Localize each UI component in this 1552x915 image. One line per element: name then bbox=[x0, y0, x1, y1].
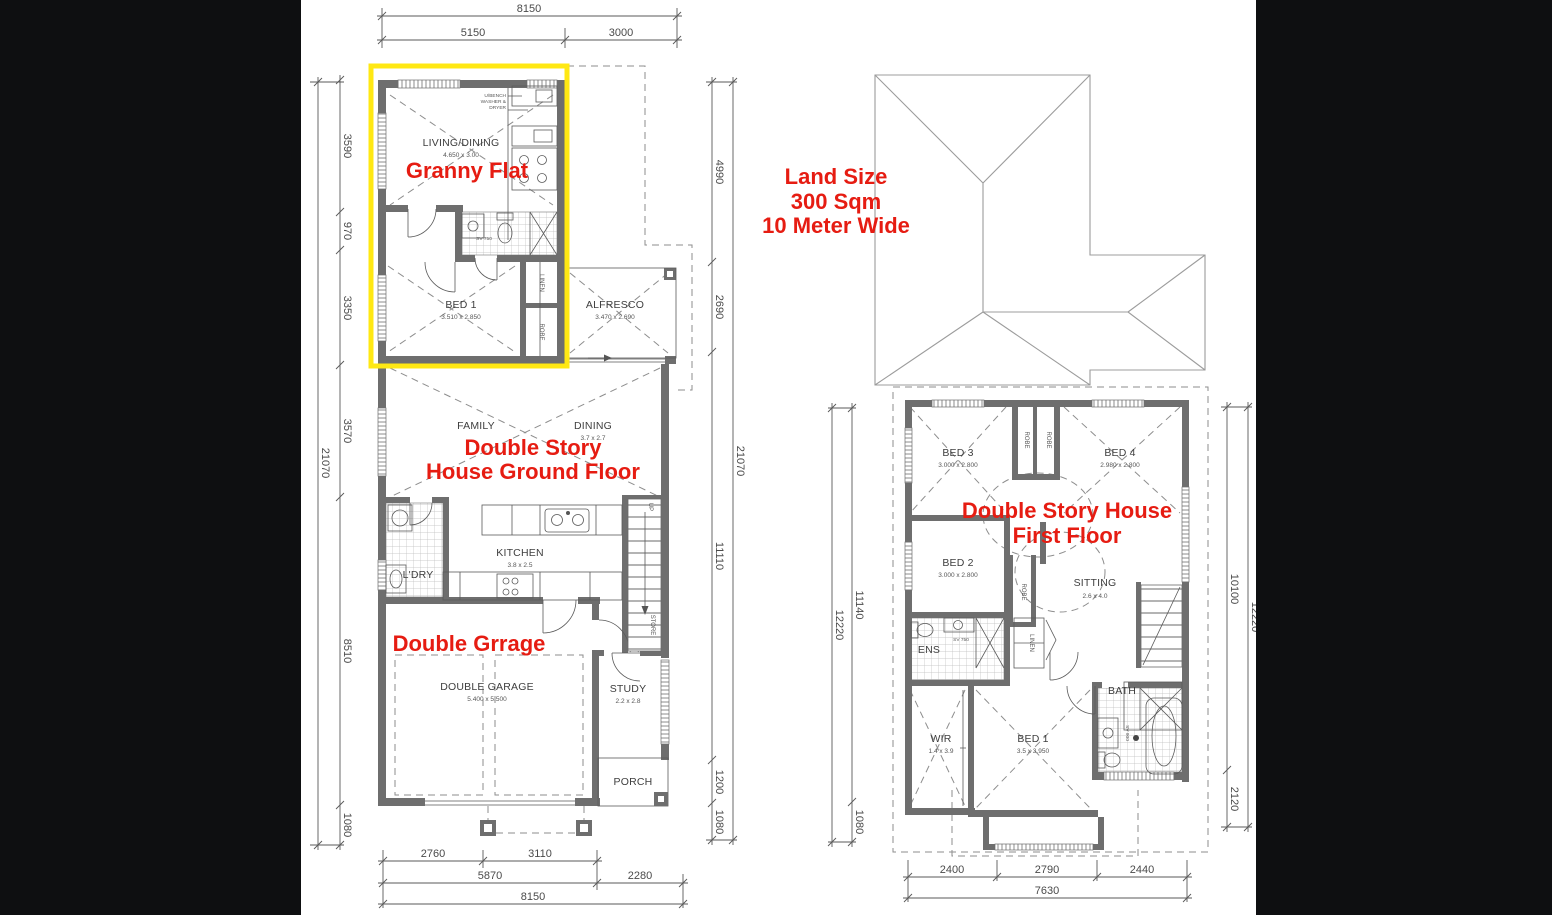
ff-room-bed4-label: BED 4 bbox=[1104, 447, 1135, 459]
gf-room-bed1-label: BED 1 bbox=[445, 299, 476, 311]
annotation-ground-floor-line2: House Ground Floor bbox=[426, 459, 640, 484]
ff-dim-right-a: 10100 bbox=[1228, 574, 1240, 605]
gf-label-up: UP bbox=[647, 503, 653, 511]
gf-room-family-label: FAMILY bbox=[457, 420, 495, 432]
gf-appliance-note-3: DRYER bbox=[489, 105, 506, 111]
gf-room-study-size: 2.2 x 2.8 bbox=[616, 698, 641, 705]
ff-label-robe-2: ROBE bbox=[1045, 431, 1051, 448]
gf-dim-bottom-d: 2280 bbox=[628, 870, 652, 882]
ff-label-robe-1: ROBE bbox=[1023, 431, 1029, 448]
ff-dim-right-b: 2120 bbox=[1228, 787, 1240, 811]
gf-dim-right-c: 11110 bbox=[713, 542, 725, 570]
gf-room-living-label: LIVING/DINING bbox=[423, 137, 500, 149]
gf-room-garage-label: DOUBLE GARAGE bbox=[440, 681, 534, 693]
gf-dim-left-total: 21070 bbox=[319, 448, 331, 479]
gf-room-garage-size: 5.400 x 5.500 bbox=[467, 696, 507, 703]
ff-dim-left-b: 1080 bbox=[853, 810, 865, 834]
left-black-bar bbox=[0, 0, 301, 915]
gf-dim-right-d: 1200 bbox=[713, 770, 725, 794]
ff-room-bed1-label: BED 1 bbox=[1017, 733, 1048, 745]
gf-dim-bottom-b: 3110 bbox=[528, 848, 552, 860]
ff-dim-bottom-b: 2790 bbox=[1035, 864, 1059, 876]
gf-dim-right-e: 1080 bbox=[713, 810, 725, 834]
annotation-ground-floor-line1: Double Story bbox=[465, 435, 603, 460]
gf-dim-bottom-total: 8150 bbox=[521, 891, 545, 903]
gf-dim-left-a: 3590 bbox=[341, 134, 353, 158]
gf-room-study-label: STUDY bbox=[610, 683, 647, 695]
ff-label-linen: LINEN bbox=[1028, 634, 1034, 652]
gf-room-kitchen-label: KITCHEN bbox=[496, 547, 544, 559]
gf-label-sv750: SV 750 bbox=[476, 236, 492, 242]
gf-room-alfresco-size: 3.470 x 2.690 bbox=[595, 314, 635, 321]
gf-appliance-note-1: U/BENCH bbox=[484, 93, 506, 99]
ff-room-bed4-size: 2.980 x 2.800 bbox=[1100, 462, 1140, 469]
gf-dim-left-e: 8510 bbox=[341, 639, 353, 663]
gf-dim-left-f: 1080 bbox=[341, 813, 353, 837]
gf-dim-left-b: 970 bbox=[341, 222, 353, 240]
gf-dim-top-b: 3000 bbox=[609, 27, 633, 39]
gf-room-alfresco-label: ALFRESCO bbox=[586, 299, 644, 311]
gf-label-store: STORE bbox=[649, 615, 655, 636]
ff-room-bed3-label: BED 3 bbox=[942, 447, 973, 459]
ff-label-sv750: SV 750 bbox=[953, 637, 969, 643]
floor-plan-page: 8150 5150 3000 21070 3590 970 3350 3570 … bbox=[0, 0, 1552, 915]
gf-room-porch-label: PORCH bbox=[614, 776, 653, 788]
gf-room-bed1-size: 3.510 x 2.850 bbox=[441, 314, 481, 321]
ff-label-robe-3: ROBE bbox=[1020, 583, 1026, 600]
gf-label-robe: ROBE bbox=[538, 323, 544, 340]
annotation-land-line3: 10 Meter Wide bbox=[762, 213, 910, 238]
annotation-garage: Double Grrage bbox=[393, 631, 546, 656]
gf-appliance-note-2: WASHER & bbox=[481, 99, 507, 105]
gf-dim-bottom-a: 2760 bbox=[421, 848, 445, 860]
ff-room-bed2-label: BED 2 bbox=[942, 557, 973, 569]
gf-dim-bottom-c: 5870 bbox=[478, 870, 502, 882]
ff-label-sv900: SV 900 bbox=[1124, 725, 1130, 741]
ff-room-ens-label: ENS bbox=[918, 644, 940, 656]
ff-dim-bottom-a: 2400 bbox=[940, 864, 964, 876]
ff-room-bed2-size: 3.000 x 2.800 bbox=[938, 572, 978, 579]
annotation-land-line1: Land Size bbox=[785, 164, 888, 189]
gf-dim-top-total: 8150 bbox=[517, 3, 541, 15]
ff-dim-bottom-total: 7630 bbox=[1035, 885, 1059, 897]
right-black-bar bbox=[1256, 0, 1552, 915]
annotation-land-line2: 300 Sqm bbox=[791, 189, 882, 214]
floor-plans-svg: 8150 5150 3000 21070 3590 970 3350 3570 … bbox=[0, 0, 1552, 915]
ff-dim-bottom-c: 2440 bbox=[1130, 864, 1154, 876]
gf-dim-top-a: 5150 bbox=[461, 27, 485, 39]
annotation-first-floor-line1: Double Story House bbox=[962, 498, 1172, 523]
ff-room-bed1-size: 3.5 x 3.950 bbox=[1017, 748, 1050, 755]
gf-dim-left-d: 3570 bbox=[341, 419, 353, 443]
gf-room-kitchen-size: 3.8 x 2.5 bbox=[508, 562, 533, 569]
gf-dim-left-c: 3350 bbox=[341, 296, 353, 320]
ff-room-sitting-size: 2.6 x 4.0 bbox=[1083, 593, 1108, 600]
annotation-granny-flat: Granny Flat bbox=[406, 158, 529, 183]
gf-dim-right-a: 4990 bbox=[713, 160, 725, 184]
gf-room-laundry-label: L'DRY bbox=[403, 569, 434, 581]
gf-dim-right-b: 2690 bbox=[713, 295, 725, 319]
ff-dim-left-a: 11140 bbox=[853, 591, 865, 620]
ff-room-sitting-label: SITTING bbox=[1074, 577, 1117, 589]
ff-dim-left-total: 12220 bbox=[833, 610, 845, 641]
annotation-first-floor-line2: First Floor bbox=[1013, 523, 1122, 548]
ff-room-wir-size: 1.4 x 3.9 bbox=[929, 748, 954, 755]
ff-room-wir-label: WIR bbox=[930, 733, 951, 745]
ff-room-bed3-size: 3.000 x 2.800 bbox=[938, 462, 978, 469]
gf-label-linen: LINEN bbox=[538, 274, 544, 292]
ff-room-bath-label: BATH bbox=[1108, 685, 1136, 697]
gf-dim-right-total: 21070 bbox=[734, 446, 746, 477]
gf-room-dining-label: DINING bbox=[574, 420, 612, 432]
